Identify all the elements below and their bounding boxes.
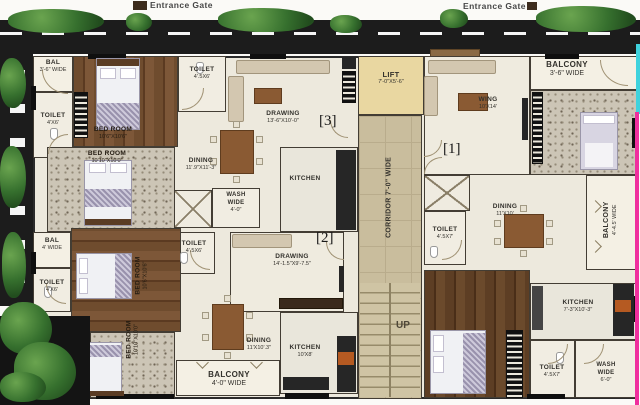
flat3-toilet-left-label: TOILET4'X6'	[35, 112, 71, 127]
fridge	[615, 300, 631, 312]
sofa	[428, 60, 496, 74]
flat2-balcony-small-label: BAL4' WIDE	[34, 237, 70, 252]
window-bar	[285, 393, 329, 399]
flat3-toilet-top-label: TOILET4'.5X6'	[180, 66, 224, 81]
boundary-line-magenta	[635, 112, 639, 405]
flat3-drawing-label: DRAWING13'-6"X10'-0"	[246, 110, 320, 125]
bed-pillow	[79, 278, 88, 294]
kitchen-counter	[336, 150, 356, 230]
coffee-table	[254, 88, 282, 104]
sofa	[236, 60, 330, 74]
flat2-kitchen-label: KITCHEN10'X8'	[282, 344, 328, 359]
tree	[0, 372, 46, 402]
bed	[580, 112, 618, 170]
gate-post-icon	[133, 1, 147, 10]
bed-footboard	[85, 219, 131, 225]
flat3-dining-label: DINING11'.9"X11'-3"	[177, 157, 225, 172]
bed-pillow	[433, 356, 444, 373]
lobby-duct	[342, 71, 356, 103]
stair-rail	[389, 283, 391, 397]
sofa	[228, 76, 244, 122]
tv-unit	[339, 266, 344, 292]
bed	[76, 253, 132, 299]
hedge	[126, 13, 152, 31]
flat1-balcony-top-label: BALCONY3'-6" WIDE	[524, 60, 610, 79]
lobby-shaft	[342, 57, 356, 69]
gate-post-icon	[527, 2, 537, 10]
flat2-bedroom1-label: BED ROOM10'6"X10'6"	[135, 241, 150, 311]
bed	[96, 58, 140, 130]
hedge	[8, 9, 104, 33]
flat1-toilet-mid-label: TOILET4'.5X7'	[424, 226, 466, 241]
flat1-drawing-label: WING10'X14'	[466, 96, 510, 111]
unit1-label: [1]	[443, 141, 461, 158]
window-bar	[527, 394, 565, 399]
hedge	[536, 6, 636, 32]
bed-headboard	[97, 59, 139, 66]
bed-blanket	[115, 254, 131, 298]
flat1-kitchen-label: KITCHEN7'-3"X10'-3"	[548, 299, 608, 314]
bed-pillow	[433, 335, 444, 352]
bed	[430, 330, 486, 394]
flat1-wardrobe-bottom	[506, 330, 523, 398]
flat1-toilet-bottom-label: TOILET4'.5X7'	[530, 364, 574, 379]
flat2-balcony-label: BALCONY4'-0" WIDE	[188, 370, 270, 389]
unit2-label: [2]	[316, 230, 334, 247]
entrance-gate-left-label: Entrance Gate	[150, 0, 213, 10]
flat2-bedroom2-label: BED ROOM10'10"X10'0"	[126, 305, 141, 375]
entrance-gate-right-label: Entrance Gate	[463, 1, 526, 11]
unit3-label: [3]	[319, 113, 337, 130]
sofa	[424, 76, 438, 116]
bed-pillow	[583, 115, 615, 124]
flat3-bedroom2-label: BED ROOM10'10"X10'0"	[75, 150, 139, 165]
flat3-toilet-mid-label: TOILET4'.5X6'	[173, 240, 215, 255]
window-bar	[250, 54, 286, 59]
corridor-label: CORRIDOR 7'-0" WIDE	[386, 137, 395, 257]
flat1-balcony-right-label: BALCONY4'-4.5' WIDE	[603, 186, 619, 254]
fridge	[338, 352, 354, 365]
kitchen-counter	[283, 377, 329, 390]
flat2-dining-label: DINING11'X10'.3"	[236, 337, 282, 352]
hedge	[218, 8, 314, 32]
bed-sheet	[585, 143, 613, 167]
flat1-wash-label: WASHWIDE6'-0"	[582, 362, 630, 384]
bed-pillow	[100, 68, 116, 79]
flat2-toilet-label: TOILET4'X6'	[34, 279, 70, 294]
console-table	[279, 298, 343, 309]
flat1-wardrobe-top	[532, 92, 543, 164]
boundary-line-cyan	[636, 44, 640, 114]
stairs-up-label: UP	[396, 320, 410, 331]
road-top-lane-dashes	[0, 32, 640, 35]
window-bar	[31, 252, 36, 274]
tv-unit	[522, 98, 528, 140]
tree	[0, 146, 26, 208]
bed-pillow	[79, 258, 88, 274]
sofa	[232, 234, 292, 248]
tree	[2, 232, 26, 298]
lift-label: LIFT7'-0"X5'-6"	[358, 70, 424, 86]
flat3-shaft	[174, 190, 212, 228]
tree	[0, 58, 26, 108]
bed-blanket	[463, 333, 485, 393]
flat3-wash-label: WASHWIDE4'-0"	[214, 192, 258, 214]
window-bar	[31, 86, 36, 110]
hedge	[330, 15, 362, 33]
flat2-drawing-label: DRAWING14'-1.5"X9'-7.5"	[258, 253, 326, 268]
flat1-dining-label: DINING11'X10'	[482, 203, 528, 218]
flat3-bedroom1-label: BED ROOM10'6"X10'6"	[80, 126, 146, 141]
window-bar	[545, 54, 579, 59]
bed-pillow	[120, 68, 136, 79]
hedge	[440, 9, 468, 28]
bed	[84, 160, 132, 226]
flat3-balcony-label: BAL3'-6" WIDE	[35, 59, 71, 74]
floor-plan: Entrance Gate Entrance Gate	[0, 0, 640, 405]
bed-blanket	[85, 189, 131, 207]
toilet-fixture	[430, 246, 438, 258]
kitchen-counter	[532, 286, 543, 330]
flat3-kitchen-label: KITCHEN	[280, 175, 330, 183]
flat1-shaft	[424, 175, 470, 211]
